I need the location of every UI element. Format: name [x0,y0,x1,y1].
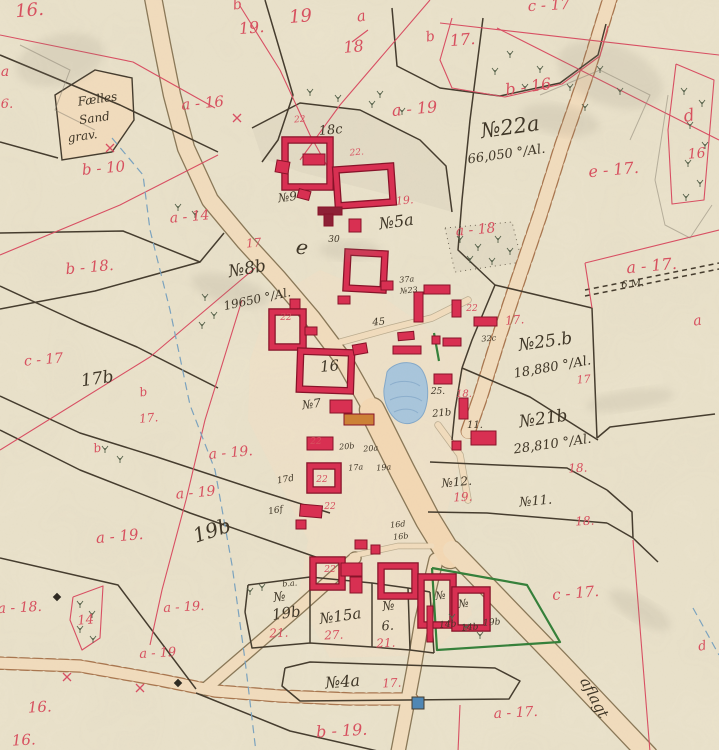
parcel-label: c - 17 [23,350,64,369]
farm-number-label: 16d [390,519,406,529]
farm-number-label: 17a [348,462,364,472]
parcel-label: 18 [343,36,365,57]
parcel-label: 16. [14,0,44,22]
building [434,374,452,384]
building [330,400,352,413]
farm-number-label: 19a [376,462,392,472]
farm-number-label: 25. [430,387,445,397]
parcel-label: 22 [279,313,292,323]
parcel-label: 16. [11,730,36,749]
building-block [296,520,306,529]
parcel-label: a - 17. [493,704,538,722]
parcel-label: 21. [375,636,396,651]
building-block [452,441,461,450]
farm-number-label: 21b [431,407,452,420]
parcel-label: 22 [323,565,336,575]
building-block [432,336,440,344]
building-block [349,219,361,232]
parcel-label: 22 [465,304,478,314]
building [398,331,415,340]
parcel-label: b - 19. [316,720,368,742]
building [355,540,367,549]
farm-number-label: 6. [381,619,395,635]
parcel-label: 19. [453,490,473,505]
parcel-label: 17 [245,235,262,250]
farm-number-label: 20a [362,443,379,453]
parcel-label: 22 [323,502,336,512]
building-block [371,545,380,554]
building [381,281,393,290]
farm-number-label: № [380,598,395,615]
building [350,577,362,593]
parcel-label: a - 18. [0,599,42,617]
building-block [275,160,290,174]
parcel-label: 19 [288,5,313,28]
farm-number-label: № [433,588,446,602]
farm-number-label: 14b [461,622,479,633]
building [300,504,323,518]
building [459,398,468,419]
parcel-label: 17 [576,372,591,386]
building [303,154,325,165]
building-block [305,327,317,335]
building [296,520,306,529]
farm-number-label: №11. [518,493,553,511]
building [452,441,461,450]
building [338,296,350,304]
parcel-label: 22. [348,147,364,158]
building-block [471,431,496,445]
parcel-label: 22 [293,115,307,126]
building-block [443,338,461,346]
parcel-label: 19. [238,17,265,38]
building-block [300,504,323,518]
building [341,563,362,576]
building-block [330,400,352,413]
farm-number-label: 16 [319,356,340,376]
parcel-label: a - 16 [181,92,225,114]
building-block [452,300,461,317]
parcel-label: 18. [568,461,588,476]
parcel-label: 19. [395,193,414,207]
building-block [344,414,374,425]
building-block [355,540,367,549]
building [452,300,461,317]
cadastral-map: 16.a6.FællesSandgrav.a - 16b - 10a - 14b… [0,0,719,750]
farm-number-label: 16b [393,531,409,541]
farm-number-label: №9 [276,189,298,206]
building-block [427,606,433,642]
building [393,346,421,354]
farm-number-label: №12. [440,474,473,491]
farm-number-label: 19b [483,617,501,628]
parcel-label: 16. [27,697,52,716]
parcel-label: 18. [575,514,595,529]
building-block [414,292,423,322]
farm-number-label: 6.M. [621,278,645,291]
building-block [381,281,393,290]
parcel-label: 6. [1,97,13,112]
building-block [424,285,450,294]
building-block [350,577,362,593]
well [412,697,424,709]
farm-number-label: 18c [318,122,344,139]
parcel-label: 14 [77,612,95,628]
farm-number-label: 11. [467,420,483,431]
parcel-label: 17. [505,312,525,328]
building [432,336,440,344]
building [371,545,380,554]
farm-number-label: №7 [300,396,322,413]
building [471,431,496,445]
building [424,285,450,294]
farm-number-label: 14b [439,619,457,630]
building [474,317,497,326]
parcel-label: 21. [268,626,289,641]
parcel-label: a - 19 [139,645,177,662]
parcel-label: a [1,64,9,80]
building-block [341,563,362,576]
building [443,338,461,346]
parcel-label: a - 19. [163,599,205,616]
parcel-label: a - 19 [391,97,438,120]
building-block [434,374,452,384]
parcel-label: 27. [323,628,344,643]
building-block [338,296,350,304]
farm-number-label: 32c [481,333,497,343]
building [352,343,368,355]
building [275,160,290,174]
farm-number-label: 30 [328,235,340,245]
map-canvas: 16.a6.FællesSandgrav.a - 16b - 10a - 14b… [0,0,719,750]
parcel-label: 22 [315,475,328,485]
building-block [352,343,368,355]
farm-number-label: №23 [399,285,418,296]
parcel-label: 16 [687,145,706,162]
building-block [459,398,468,419]
parcel-label: 18. [456,389,472,400]
building-block [474,317,497,326]
building-block [393,346,421,354]
farm-number-label: №4a [323,671,360,693]
building [414,292,423,322]
farm-number-label: 45 [371,316,386,328]
parcel-label: 22 [309,437,322,447]
building [344,414,374,425]
parcel-label: 17. [382,676,402,691]
building [349,219,361,232]
parcel-label: 17. [449,29,476,50]
building [324,214,333,226]
farm-number-label: b.a. [282,578,298,588]
building [427,606,433,642]
farm-number-label: 37a [399,274,415,284]
parcel-label: b - 10 [81,157,126,179]
building-block [324,214,333,226]
building-block [303,154,325,165]
parcel-label: 17. [139,410,159,426]
parcel-label: c - 17 [527,0,570,15]
building-block [398,331,415,340]
building [305,327,317,335]
farm-number-label: 20b [338,441,355,451]
farm-number-label: № [456,596,469,610]
